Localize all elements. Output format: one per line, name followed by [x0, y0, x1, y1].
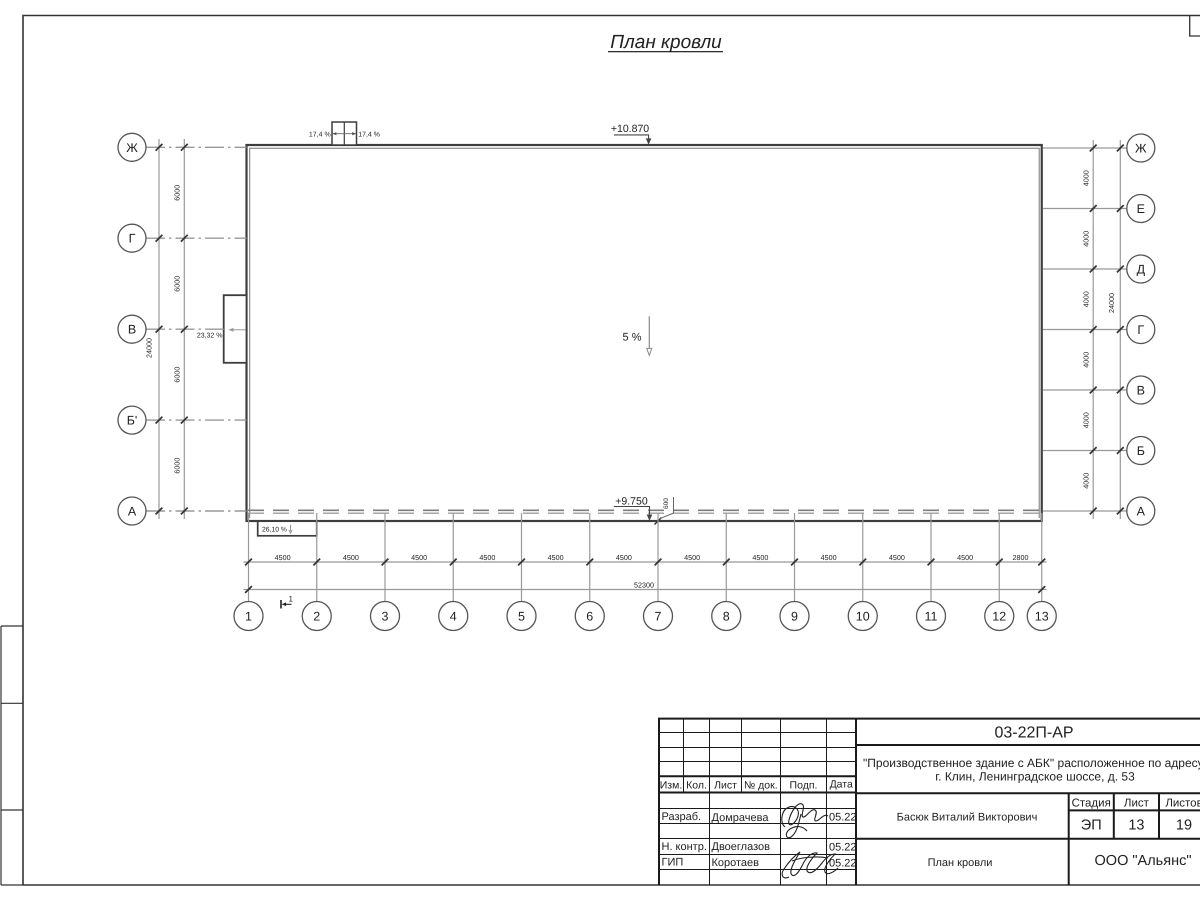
- svg-text:4500: 4500: [821, 553, 837, 562]
- svg-text:600: 600: [663, 498, 670, 509]
- svg-text:26,10 %: 26,10 %: [262, 526, 287, 533]
- svg-text:Г: Г: [1137, 323, 1144, 337]
- svg-text:4500: 4500: [957, 553, 973, 562]
- svg-text:6000: 6000: [173, 367, 182, 383]
- svg-text:4000: 4000: [1081, 231, 1090, 247]
- svg-text:4500: 4500: [275, 553, 291, 562]
- svg-text:Басюк Виталий Викторович: Басюк Виталий Викторович: [897, 812, 1038, 824]
- svg-text:4500: 4500: [411, 553, 427, 562]
- svg-text:4000: 4000: [1081, 412, 1090, 428]
- svg-text:6: 6: [586, 610, 593, 624]
- svg-text:11: 11: [925, 610, 938, 624]
- svg-text:05.22: 05.22: [829, 842, 857, 854]
- svg-text:3: 3: [382, 610, 389, 624]
- svg-text:Двоеглазов: Двоеглазов: [712, 841, 771, 853]
- svg-text:Коротаев: Коротаев: [712, 857, 760, 869]
- svg-text:17,4 %: 17,4 %: [309, 131, 331, 138]
- svg-text:6000: 6000: [173, 458, 182, 474]
- svg-text:Г: Г: [129, 232, 136, 246]
- svg-text:Дата: Дата: [830, 779, 853, 791]
- svg-text:В: В: [1137, 384, 1145, 398]
- svg-text:Б: Б: [1137, 444, 1145, 458]
- svg-text:Ж: Ж: [1135, 142, 1147, 156]
- svg-text:"Производственное здание с АБК: "Производственное здание с АБК" располож…: [863, 756, 1200, 770]
- svg-text:13: 13: [1035, 610, 1049, 624]
- svg-text:23,32 %: 23,32 %: [197, 332, 223, 339]
- svg-text:Стадия: Стадия: [1072, 798, 1111, 810]
- svg-text:1: 1: [289, 595, 294, 604]
- svg-text:ООО "Альянс": ООО "Альянс": [1095, 853, 1192, 869]
- svg-text:52300: 52300: [634, 580, 654, 589]
- svg-text:+9.750: +9.750: [615, 495, 648, 507]
- svg-text:Лист: Лист: [1124, 798, 1150, 810]
- svg-text:Д: Д: [1137, 263, 1146, 277]
- svg-text:2: 2: [313, 610, 320, 624]
- svg-text:5: 5: [518, 610, 525, 624]
- svg-text:План кровли: План кровли: [610, 32, 722, 53]
- svg-text:4000: 4000: [1081, 352, 1090, 368]
- svg-text:Лист: Лист: [714, 779, 737, 791]
- svg-text:А: А: [1137, 505, 1146, 519]
- svg-text:№ док.: № док.: [744, 779, 778, 791]
- svg-text:8: 8: [723, 610, 730, 624]
- svg-text:+10.870: +10.870: [611, 123, 649, 135]
- svg-text:10: 10: [856, 610, 870, 624]
- svg-text:4500: 4500: [343, 553, 359, 562]
- svg-text:17,4 %: 17,4 %: [358, 131, 380, 138]
- svg-text:4500: 4500: [684, 553, 700, 562]
- svg-text:Ж: Ж: [126, 141, 138, 155]
- svg-text:24000: 24000: [145, 338, 154, 358]
- svg-text:Изм.: Изм.: [660, 779, 683, 791]
- svg-text:4000: 4000: [1081, 473, 1090, 489]
- svg-text:19: 19: [1176, 818, 1192, 834]
- svg-text:Н. контр.: Н. контр.: [662, 841, 707, 853]
- svg-text:4500: 4500: [889, 553, 905, 562]
- svg-text:Листов: Листов: [1165, 798, 1200, 810]
- svg-text:13: 13: [1128, 818, 1144, 834]
- svg-text:г. Клин, Ленинградское шоссе,: г. Клин, Ленинградское шоссе, д. 53: [935, 770, 1135, 784]
- svg-text:4500: 4500: [479, 553, 495, 562]
- svg-text:2800: 2800: [1013, 553, 1029, 562]
- svg-text:5 %: 5 %: [623, 332, 642, 344]
- svg-text:9: 9: [791, 610, 798, 624]
- svg-text:03-22П-АР: 03-22П-АР: [994, 725, 1073, 742]
- svg-text:А: А: [128, 505, 137, 519]
- svg-text:6000: 6000: [173, 276, 182, 292]
- svg-text:ЭП: ЭП: [1081, 818, 1102, 834]
- svg-text:Кол.: Кол.: [686, 779, 707, 791]
- svg-text:4500: 4500: [752, 553, 768, 562]
- svg-text:12: 12: [992, 610, 1006, 624]
- svg-text:Разраб.: Разраб.: [662, 811, 702, 823]
- svg-text:1: 1: [245, 610, 252, 624]
- svg-text:4: 4: [450, 610, 457, 624]
- svg-text:План кровли: План кровли: [928, 857, 993, 869]
- svg-text:Домрачева: Домрачева: [712, 812, 770, 824]
- svg-text:Подп.: Подп.: [790, 779, 818, 791]
- svg-text:4500: 4500: [616, 553, 632, 562]
- svg-text:05.22: 05.22: [829, 812, 857, 824]
- svg-text:4000: 4000: [1081, 291, 1090, 307]
- svg-text:24000: 24000: [1107, 293, 1116, 313]
- svg-text:6000: 6000: [173, 185, 182, 201]
- svg-text:Е: Е: [1137, 202, 1145, 216]
- svg-text:05.22: 05.22: [829, 858, 857, 870]
- svg-text:В: В: [128, 323, 136, 337]
- svg-text:7: 7: [655, 610, 662, 624]
- svg-text:ГИП: ГИП: [662, 857, 684, 869]
- svg-text:Б': Б': [127, 414, 138, 428]
- svg-text:4000: 4000: [1081, 170, 1090, 186]
- svg-text:4500: 4500: [548, 553, 564, 562]
